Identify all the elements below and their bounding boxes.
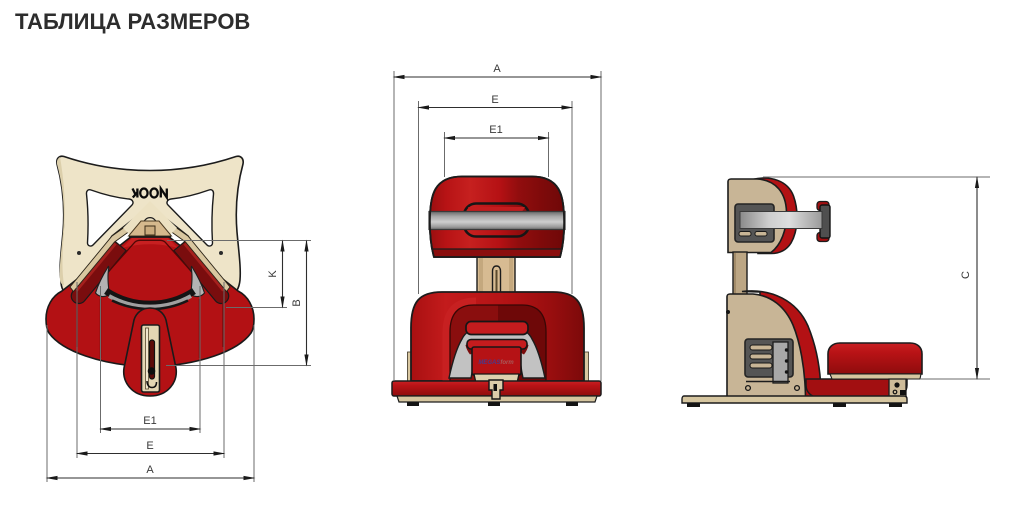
svg-text:K: K: [267, 270, 279, 278]
svg-text:C: C: [960, 271, 972, 279]
svg-text:B: B: [291, 299, 303, 306]
svg-text:MEGASform: MEGASform: [478, 360, 514, 366]
svg-text:E: E: [146, 440, 153, 452]
svg-text:A: A: [146, 464, 154, 476]
svg-text:E1: E1: [143, 415, 156, 427]
svg-text:A: A: [493, 63, 501, 75]
svg-text:E: E: [491, 94, 498, 106]
svg-text:E1: E1: [489, 124, 502, 136]
